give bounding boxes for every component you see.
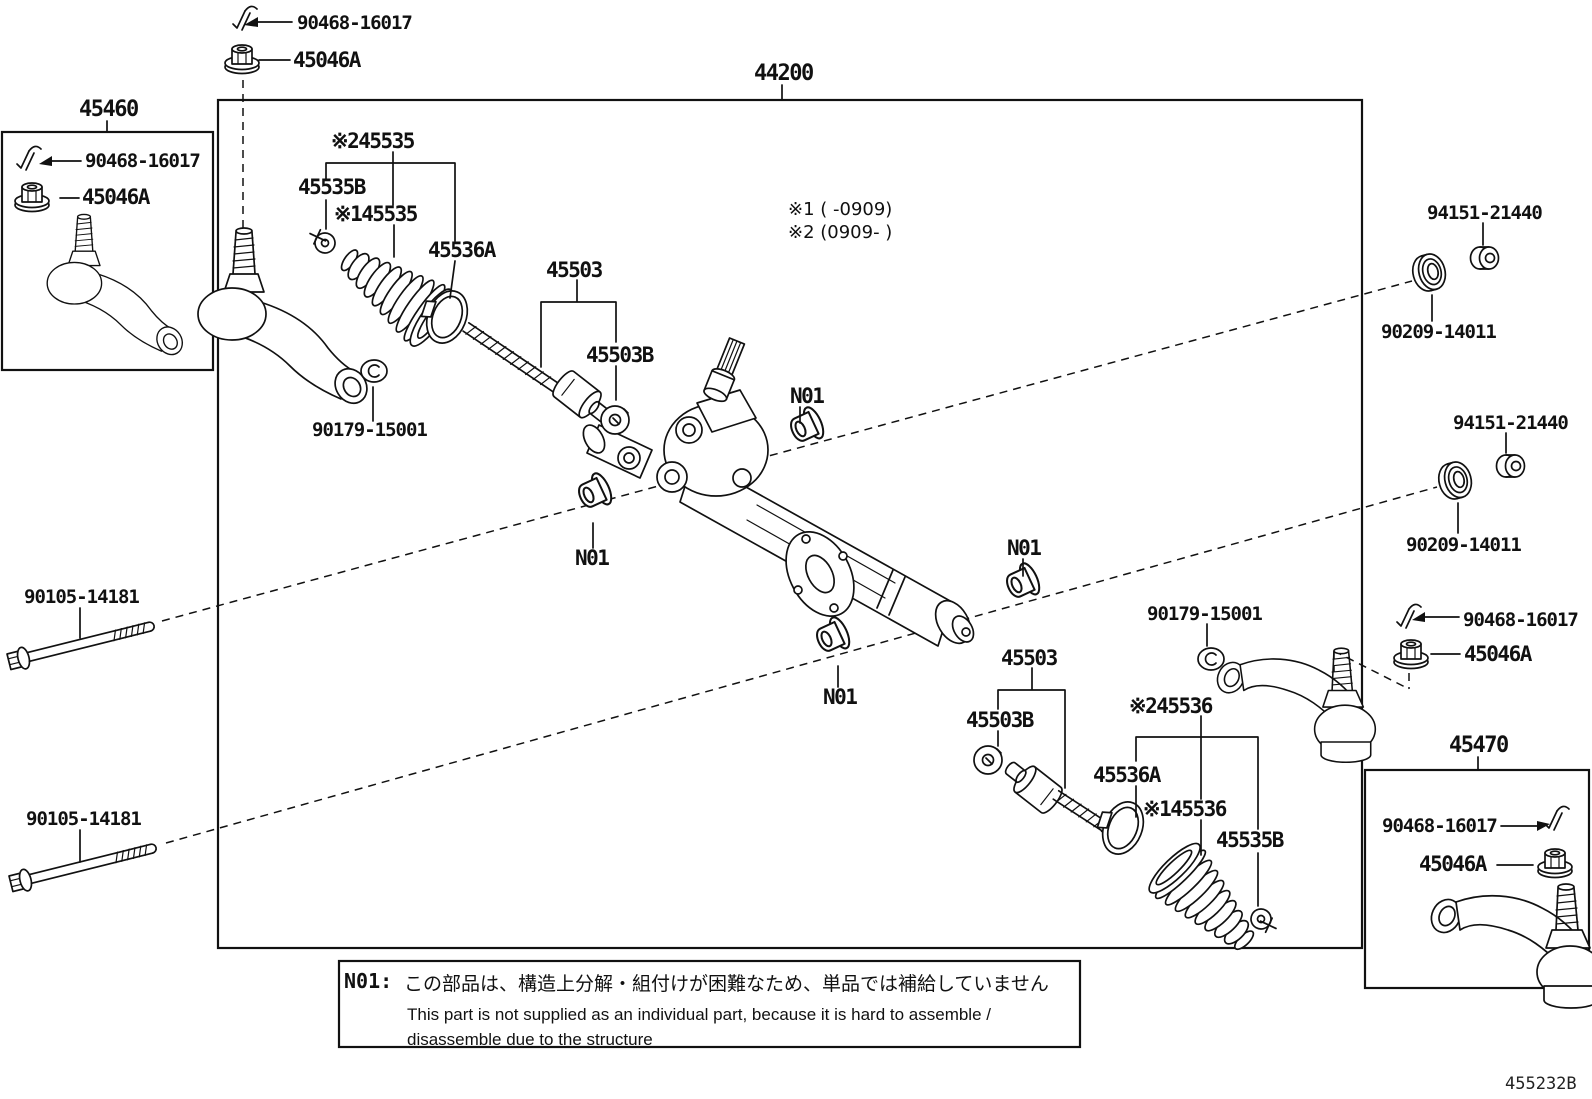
label-assembly-45460: 45460 bbox=[79, 97, 138, 122]
label-bracket-nut-upper: 94151-21440 bbox=[1427, 202, 1542, 224]
label-rod-washer-lower: 45503B bbox=[966, 708, 1034, 732]
rod-claw-washer-lower bbox=[974, 746, 1002, 774]
grommet-upper bbox=[361, 360, 387, 382]
arrowhead-right-pin bbox=[1412, 612, 1425, 622]
label-grommet-upper: 90179-15001 bbox=[312, 419, 427, 441]
doc-code: 455232B bbox=[1505, 1074, 1577, 1094]
label-boot-clamp-upper: 45535B bbox=[298, 175, 366, 199]
inner-rod-socket-lower bbox=[998, 754, 1065, 816]
grommet-lower bbox=[1198, 648, 1224, 670]
label-boot-kit1-rh: ※145536 bbox=[1143, 797, 1227, 821]
tie-rod-nut-icon-top bbox=[225, 45, 259, 74]
label-cotter-pin-right: 90468-16017 bbox=[1463, 609, 1578, 631]
rod-claw-washer-upper bbox=[601, 406, 629, 434]
bracket-washer-lower bbox=[1435, 459, 1475, 502]
bracket-nut-upper bbox=[1471, 247, 1499, 269]
tie-rod-nut-icon-rh-box bbox=[1538, 849, 1572, 878]
label-cotter-pin-lh-box: 90468-16017 bbox=[85, 150, 200, 172]
boot-clamp-upper bbox=[310, 227, 337, 256]
label-n01-right: N01 bbox=[1007, 536, 1041, 560]
label-n01-bottom: N01 bbox=[823, 685, 857, 709]
tie-rod-end-lh-box bbox=[47, 214, 187, 359]
label-boot-kit1-lh: ※145535 bbox=[334, 202, 418, 226]
label-inner-rod-upper: 45503 bbox=[546, 258, 603, 282]
mount-bushing-n01-left bbox=[574, 471, 615, 514]
label-nut-lh-box: 45046A bbox=[82, 185, 151, 209]
label-n01-left: N01 bbox=[575, 546, 609, 570]
label-boot-clip-lower: 45536A bbox=[1093, 763, 1162, 787]
note-english-line1: This part is not supplied as an individu… bbox=[407, 1005, 991, 1024]
label-nut-rh-box: 45046A bbox=[1419, 852, 1488, 876]
mount-bolt-lower bbox=[8, 837, 158, 895]
boot-clip-ring-lower bbox=[1090, 794, 1151, 861]
mount-bushing-n01-top bbox=[786, 405, 827, 448]
label-mount-bolt-lower: 90105-14181 bbox=[26, 808, 141, 830]
bracket-nut-lower bbox=[1497, 455, 1525, 477]
cotter-pin-icon-right bbox=[1397, 604, 1421, 628]
label-cotter-pin-top: 90468-16017 bbox=[297, 12, 412, 34]
label-bracket-washer-lower: 90209-14011 bbox=[1406, 534, 1521, 556]
cotter-pin-icon-lh-box bbox=[17, 146, 41, 170]
label-assembly-45470: 45470 bbox=[1449, 733, 1508, 758]
inner-rod-threads-upper bbox=[463, 322, 561, 393]
parts-catalog-page: 90468-16017 45046A 45460 90468-16017 450… bbox=[0, 0, 1592, 1099]
label-grommet-lower: 90179-15001 bbox=[1147, 603, 1262, 625]
arrowhead-lhbox-pin bbox=[39, 156, 52, 166]
label-boot-kit2-lh: ※245535 bbox=[331, 129, 415, 153]
label-n01-top: N01 bbox=[790, 384, 824, 408]
cotter-pin-icon-rh-box bbox=[1545, 806, 1569, 830]
label-boot-kit2-rh: ※245536 bbox=[1129, 694, 1213, 718]
label-assembly-44200: 44200 bbox=[754, 61, 813, 86]
exploded-parts-diagram: 90468-16017 45046A 45460 90468-16017 450… bbox=[0, 0, 1592, 1099]
mount-bolt-upper bbox=[6, 615, 156, 673]
label-boot-clip-upper: 45536A bbox=[428, 238, 497, 262]
label-bracket-washer-upper: 90209-14011 bbox=[1381, 321, 1496, 343]
cotter-pin-icon-top bbox=[233, 6, 257, 30]
note-japanese: この部品は、構造上分解・組付けが困難なため、単品では補給していません bbox=[404, 973, 1049, 995]
note-tag: N01: bbox=[344, 969, 392, 993]
label-nut-right: 45046A bbox=[1464, 642, 1533, 666]
boot-clamp-lower bbox=[1249, 906, 1276, 935]
label-mount-bolt-upper: 90105-14181 bbox=[24, 586, 139, 608]
label-bracket-nut-lower: 94151-21440 bbox=[1453, 412, 1568, 434]
mount-bushing-n01-bottom bbox=[812, 615, 853, 658]
steering-gear-assembly bbox=[579, 337, 978, 650]
footnote-2: ※2 (0909- ) bbox=[788, 222, 892, 243]
bracket-washer-upper bbox=[1409, 251, 1449, 294]
tie-rod-nut-icon-right bbox=[1394, 640, 1428, 669]
label-inner-rod-lower: 45503 bbox=[1001, 646, 1058, 670]
label-boot-clamp-lower: 45535B bbox=[1216, 828, 1284, 852]
leader-lines bbox=[39, 17, 1550, 906]
label-rod-washer-upper: 45503B bbox=[586, 343, 654, 367]
note-english-line2: disassemble due to the structure bbox=[407, 1030, 653, 1049]
label-cotter-pin-rh-box: 90468-16017 bbox=[1382, 815, 1497, 837]
tie-rod-end-rh-box bbox=[1426, 884, 1592, 1008]
footnote-1: ※1 ( -0909) bbox=[788, 199, 892, 220]
label-nut-top: 45046A bbox=[293, 48, 362, 72]
tie-rod-nut-icon-lh-box bbox=[15, 183, 49, 212]
tie-rod-end-rh-main bbox=[1213, 648, 1376, 762]
